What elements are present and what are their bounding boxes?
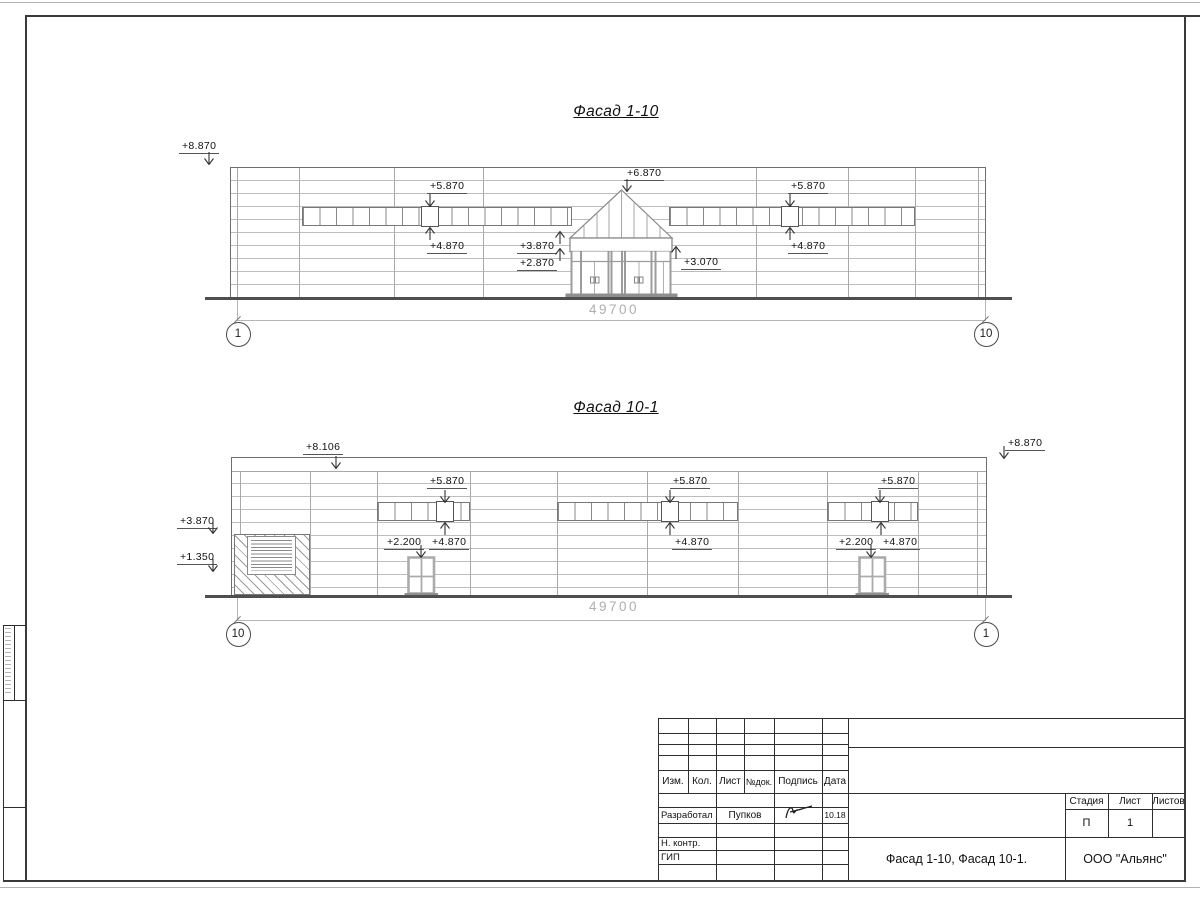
col-ndok: №док. — [744, 770, 774, 793]
facade-bottom-louver — [247, 536, 296, 575]
facade-top-marked-window-right — [781, 206, 799, 227]
facade-bottom-dimension-value: 49700 — [564, 599, 664, 614]
elevation-mark: +8.106 — [303, 441, 343, 455]
frame-left — [25, 15, 27, 882]
signature-icon — [782, 803, 816, 823]
facade-bottom-window-strip-left — [377, 502, 470, 521]
col-izm: Изм. — [658, 770, 688, 793]
sheets-label: Листов — [1152, 793, 1185, 809]
sheet-value: 1 — [1108, 809, 1152, 837]
elevation-mark: +4.870 — [427, 240, 467, 254]
elevation-mark: +5.870 — [788, 180, 828, 194]
elevation-arrow-up-icon — [664, 522, 676, 535]
facade-top-marked-window-left — [421, 206, 439, 227]
elevation-mark: +5.870 — [878, 475, 918, 489]
stage-label: Стадия — [1065, 793, 1108, 809]
frame-bottom — [3, 880, 1185, 882]
elevation-arrow-down-icon — [415, 545, 427, 558]
axis-circle-1: 1 — [226, 322, 251, 347]
elevation-mark: +2.870 — [517, 257, 557, 271]
elevation-mark: +3.870 — [517, 240, 557, 254]
col-kol: Кол. — [688, 770, 716, 793]
elevation-mark: +5.870 — [427, 475, 467, 489]
facade-bottom-marked-window-left — [436, 501, 454, 522]
axis-circle-10: 10 — [974, 322, 999, 347]
row-developer-date: 10.18 — [822, 807, 848, 823]
elevation-arrow-up-icon — [670, 246, 682, 259]
elevation-arrow-down-icon — [865, 545, 877, 558]
elevation-arrow-down-icon — [203, 152, 215, 165]
axis-circle-1b: 1 — [974, 622, 999, 647]
elevation-arrow-down-icon — [784, 194, 796, 207]
elevation-arrow-down-icon — [207, 521, 219, 534]
axis-circle-10b: 10 — [226, 622, 251, 647]
elevation-arrow-up-icon — [784, 227, 796, 240]
col-podpis: Подпись — [774, 770, 822, 793]
facade-top-title: Фасад 1-10 — [561, 103, 671, 121]
frame-top — [25, 15, 1200, 17]
elevation-mark: +8.870 — [1005, 437, 1045, 451]
elevation-arrow-down-icon — [664, 490, 676, 503]
elevation-arrow-up-icon — [875, 522, 887, 535]
elevation-arrow-down-icon — [874, 490, 886, 503]
facade-bottom-ground-line — [205, 595, 1012, 598]
elevation-mark: +3.070 — [681, 256, 721, 270]
elevation-arrow-down-icon — [207, 559, 219, 572]
elevation-mark: +5.870 — [427, 180, 467, 194]
col-list: Лист — [716, 770, 744, 793]
row-ncontr-role: Н. контр. — [658, 837, 719, 850]
facade-bottom-marked-window-middle — [661, 501, 679, 522]
elevation-arrow-down-icon — [424, 194, 436, 207]
row-gip-role: ГИП — [658, 850, 719, 864]
row-developer-name: Пупков — [716, 807, 774, 823]
sheets-value — [1152, 809, 1185, 837]
facade-top-dimension-value: 49700 — [564, 302, 664, 317]
facade-bottom-dimension-line — [237, 620, 985, 621]
facade-bottom-title: Фасад 10-1 — [561, 399, 671, 417]
paper-edge-top — [0, 2, 1200, 3]
elevation-mark: +5.870 — [670, 475, 710, 489]
elevation-arrow-down-icon — [330, 456, 342, 469]
elevation-arrow-up-icon — [554, 231, 566, 244]
elevation-arrow-up-icon — [439, 522, 451, 535]
paper-edge-bottom — [0, 887, 1200, 888]
entrance-canopy — [570, 238, 672, 252]
elevation-mark: +4.870 — [429, 536, 469, 550]
frame-right — [1184, 15, 1186, 882]
side-column-vertical-text — [5, 628, 11, 696]
elevation-arrow-down-icon — [621, 179, 633, 192]
elevation-mark: +4.870 — [788, 240, 828, 254]
facade-top-entrance — [560, 185, 685, 300]
facade-bottom-window-strip-middle — [557, 502, 738, 521]
stage-value: П — [1065, 809, 1108, 837]
facade-bottom-door-left — [403, 555, 443, 600]
row-developer-role: Разработал — [658, 807, 719, 823]
elevation-arrow-up-icon — [424, 227, 436, 240]
elevation-arrow-down-icon — [439, 490, 451, 503]
facade-top-dimension-line — [237, 320, 985, 321]
col-data: Дата — [822, 770, 848, 793]
facade-bottom-marked-window-right — [871, 501, 889, 522]
elevation-arrow-down-icon — [998, 446, 1010, 459]
elevation-mark: +4.870 — [880, 536, 920, 550]
elevation-mark: +4.870 — [672, 536, 712, 550]
company-name: ООО "Альянс" — [1065, 837, 1185, 880]
facade-top-ground-line — [205, 297, 1012, 300]
facade-bottom-door-right — [854, 555, 894, 600]
elevation-arrow-up-icon — [554, 248, 566, 261]
document-name: Фасад 1-10, Фасад 10-1. — [848, 837, 1065, 880]
sheet-label: Лист — [1108, 793, 1152, 809]
drawing-sheet: Фасад 1-10 — [0, 0, 1200, 900]
